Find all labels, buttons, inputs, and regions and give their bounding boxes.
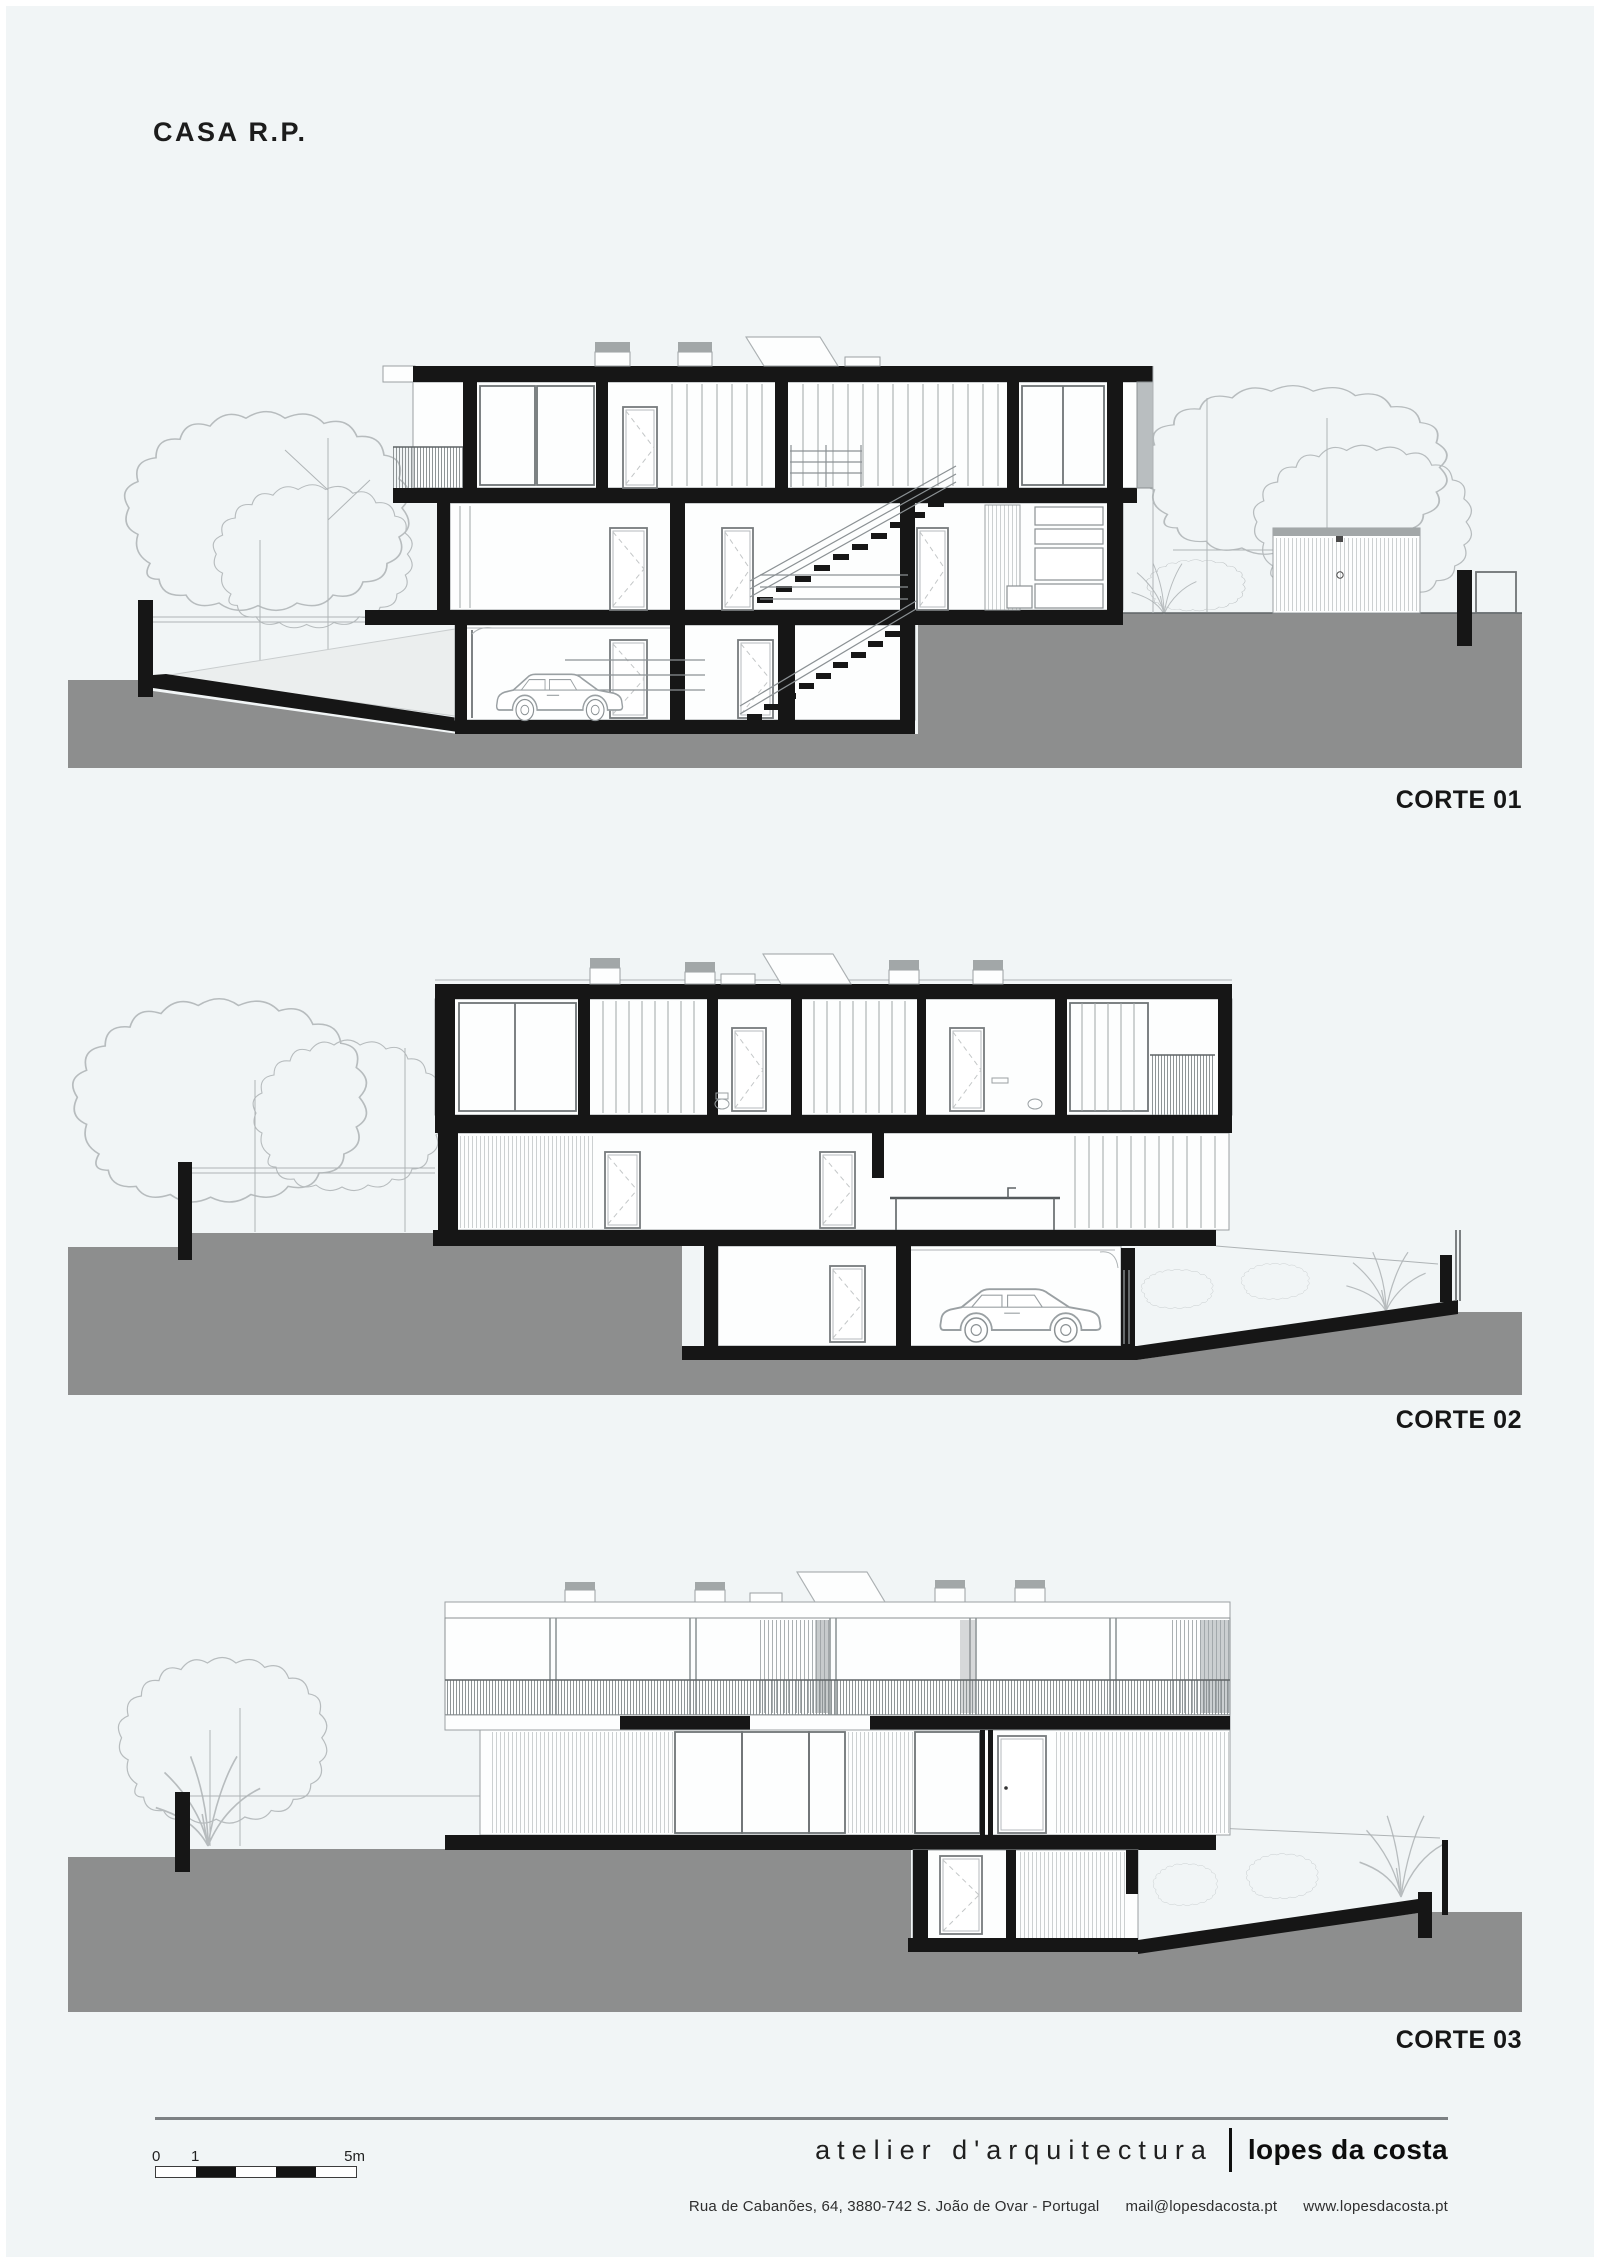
roof: [383, 337, 1153, 382]
website-text: www.lopesdacosta.pt: [1303, 2198, 1448, 2215]
studio-name-bold: lopes da costa: [1248, 2134, 1448, 2166]
scale-segment: [316, 2167, 356, 2177]
fence-post: [1456, 1230, 1460, 1301]
basement-volume: [908, 1850, 1138, 1952]
retaining-wall-left: [175, 1792, 190, 1872]
corte-03-drawing: [60, 1540, 1540, 2040]
balcony-railing: [1150, 1055, 1215, 1115]
door: [605, 1152, 640, 1228]
utility-room: [985, 505, 1103, 610]
ground-line-right: [1216, 1828, 1440, 1838]
scale-segment: [156, 2167, 196, 2177]
terrain-section: [68, 1849, 1522, 2012]
floor-slab-low: [365, 610, 1123, 625]
lower-floor-elevation: [480, 1730, 1230, 1835]
floor-slab-mid: [393, 488, 1137, 503]
door: [623, 407, 657, 488]
rooftop-elements: [595, 337, 880, 366]
slab-band: [445, 1715, 1230, 1730]
garden-wall-line: [192, 1168, 435, 1173]
page-title: CASA R.P.: [153, 117, 308, 148]
studio-address: Rua de Cabanões, 64, 3880-742 S. João de…: [689, 2198, 1448, 2215]
footer-divider-line: [155, 2117, 1448, 2120]
door: [830, 1266, 865, 1342]
door: [998, 1736, 1046, 1833]
door: [722, 528, 753, 610]
retaining-wall-right: [1440, 1255, 1452, 1302]
studio-name-light: atelier d'arquitectura: [815, 2135, 1213, 2166]
retaining-wall-left: [178, 1162, 192, 1260]
scale-bar: 0 1 5m: [155, 2148, 359, 2180]
corte-02-drawing: [60, 930, 1540, 1410]
corte-03-label: CORTE 03: [1396, 2026, 1522, 2055]
ground-line-right: [1216, 1246, 1438, 1264]
retaining-wall-right: [1418, 1892, 1432, 1938]
fence-post: [1442, 1840, 1448, 1915]
corte-01-drawing: [60, 310, 1540, 790]
door: [820, 1152, 855, 1228]
scale-segment: [196, 2167, 236, 2177]
corte-01-label: CORTE 01: [1396, 786, 1522, 815]
floor-slab-low: [433, 1230, 1216, 1246]
scale-tick-1: 1: [191, 2148, 199, 2165]
door: [732, 1028, 766, 1111]
floor-slab-mid: [435, 1115, 1232, 1133]
balcony-railing: [445, 1680, 1230, 1715]
logo-divider: [1229, 2128, 1232, 2172]
floor-slab-low: [445, 1835, 1216, 1850]
scale-tick-0: 0: [152, 2148, 160, 2165]
studio-logo: atelier d'arquitectura lopes da costa: [815, 2128, 1448, 2172]
balcony-railing: [393, 447, 463, 488]
corte-02-label: CORTE 02: [1396, 1406, 1522, 1435]
address-text: Rua de Cabanões, 64, 3880-742 S. João de…: [689, 2198, 1100, 2215]
door-handle: [1004, 1786, 1008, 1790]
email-text: mail@lopesdacosta.pt: [1125, 2198, 1277, 2215]
retaining-wall-right: [1457, 570, 1472, 646]
scale-tick-5m: 5m: [344, 2148, 365, 2165]
door: [917, 528, 948, 610]
scale-bar-graphic: [155, 2166, 357, 2178]
scale-segment: [276, 2167, 316, 2177]
door: [610, 528, 647, 610]
door: [940, 1856, 982, 1934]
door: [950, 1028, 984, 1111]
rooftop-elements: [565, 1572, 1045, 1602]
scale-segment: [236, 2167, 276, 2177]
roof: [435, 954, 1232, 999]
retaining-wall-left: [138, 600, 153, 697]
roof: [445, 1572, 1230, 1618]
